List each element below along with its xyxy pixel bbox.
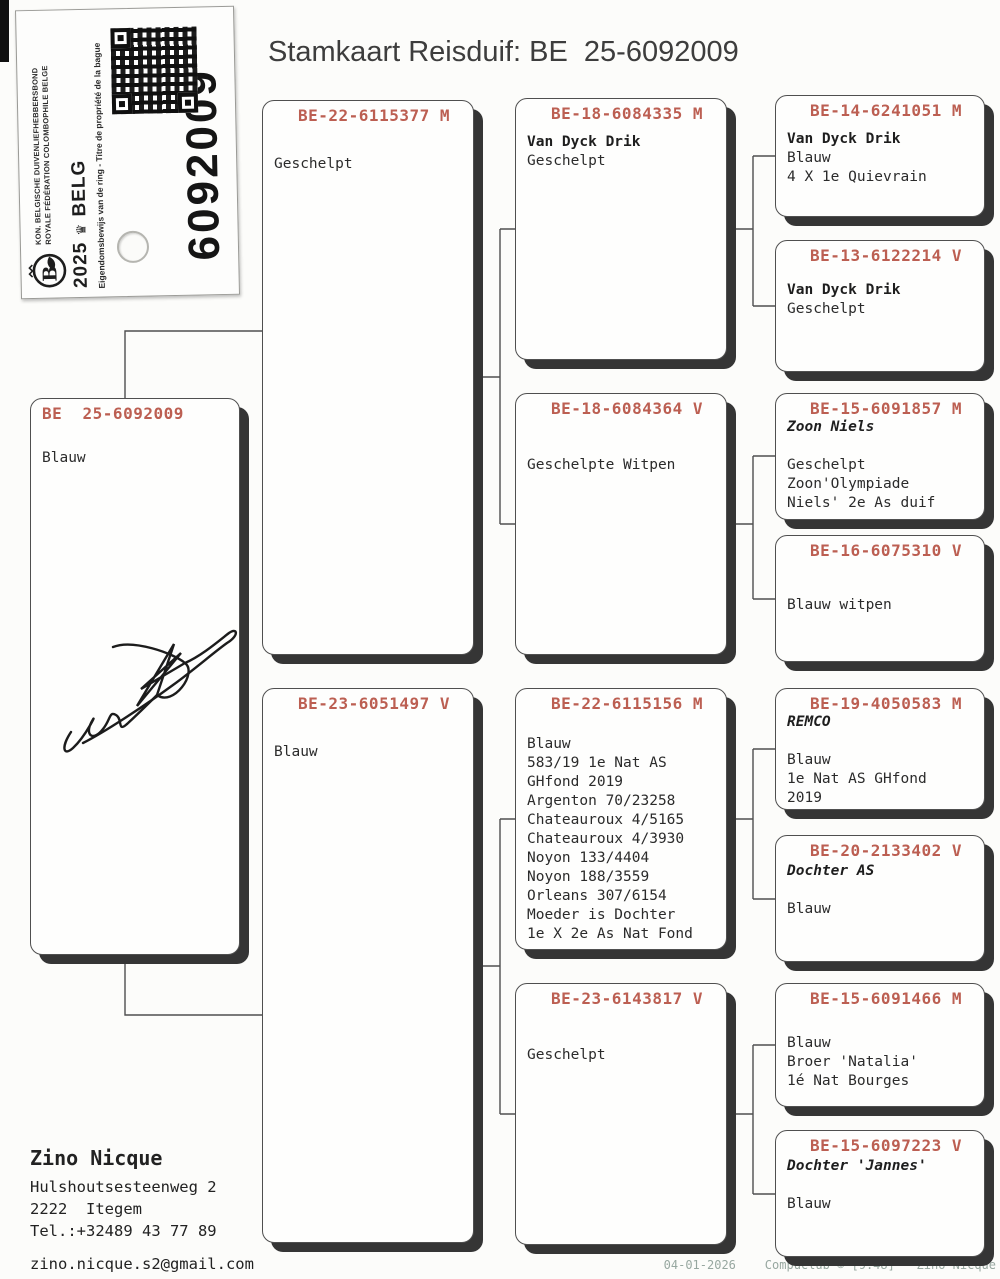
pedigree-box-sire: BE-22-6115377 M Geschelpt (262, 100, 474, 655)
pedigree-box-g3-2: BE-18-6084364 V Geschelpte Witpen (515, 393, 727, 655)
pigeon-description: Blauw 4 X 1e Quievrain (787, 149, 973, 187)
pigeon-description: Geschelpt (527, 1046, 715, 1065)
pedigree-box-g4-2: BE-13-6122214 V Van Dyck Drik Geschelpt (775, 240, 985, 372)
pedigree-box-g3-3: BE-22-6115156 M Blauw 583/19 1e Nat AS G… (515, 688, 727, 950)
pigeon-description: Blauw Broer 'Natalia' 1é Nat Bourges (787, 1034, 973, 1091)
pigeon-description: Geschelpt (527, 152, 715, 171)
pedigree-box-g4-6: BE-20-2133402 V Dochter AS Blauw (775, 835, 985, 962)
pedigree-box-subject: BE 25-6092009 Blauw (30, 398, 240, 955)
pigeon-name: Zoon Niels (787, 418, 973, 437)
pedigree-box-g4-5: BE-19-4050583 M REMCO Blauw 1e Nat AS GH… (775, 688, 985, 810)
ring-number: BE-13-6122214 V (787, 246, 973, 265)
ring-number: BE-23-6143817 V (527, 989, 715, 1008)
ring-number: BE-19-4050583 M (787, 694, 973, 713)
ring-number: BE 25-6092009 (42, 404, 228, 423)
crown-icon (29, 265, 32, 277)
pigeon-name: Van Dyck Drik (787, 130, 973, 149)
pigeon-description: Geschelpte Witpen (527, 456, 715, 475)
pigeon-description: Blauw 583/19 1e Nat AS GHfond 2019 Argen… (527, 735, 715, 944)
pigeon-description: Blauw 1e Nat AS GHfond 2019 (787, 732, 973, 808)
qr-code-icon (110, 27, 198, 115)
ring-number: BE-20-2133402 V (787, 841, 973, 860)
pigeon-description: Blauw (274, 743, 462, 762)
owner-signature (53, 611, 243, 761)
pigeon-description: Blauw (787, 881, 973, 919)
pedigree-box-g4-7: BE-15-6091466 M Blauw Broer 'Natalia' 1é… (775, 983, 985, 1107)
pigeon-name: Van Dyck Drik (787, 281, 973, 300)
ring-number: BE-15-6097223 V (787, 1136, 973, 1155)
pedigree-box-dam: BE-23-6051497 V Blauw (262, 688, 474, 1243)
pigeon-description: Geschelpt (787, 300, 973, 319)
ring-number: BE-18-6084364 V (527, 399, 715, 418)
pigeon-description: Blauw witpen (787, 596, 973, 615)
pigeon-name: Van Dyck Drik (527, 133, 715, 152)
ring-number: BE-15-6091857 M (787, 399, 973, 418)
ring-ownership-sticker: B KON. BELGISCHE DUIVENLIEFHEBBERSBOND R… (15, 6, 240, 300)
qr-finder-icon (110, 28, 130, 48)
pigeon-description: Blauw (42, 449, 228, 468)
ring-number: BE-22-6115156 M (527, 694, 715, 713)
pigeon-name: Dochter 'Jannes' (787, 1157, 973, 1176)
crest-icon: ♛ (73, 223, 88, 236)
pedigree-box-g4-4: BE-16-6075310 V Blauw witpen (775, 535, 985, 662)
ring-number: BE-15-6091466 M (787, 989, 973, 1008)
ring-country: BELG (68, 160, 90, 217)
qr-finder-icon (112, 94, 132, 114)
ring-number: BE-23-6051497 V (274, 694, 462, 713)
qr-finder-icon (178, 93, 198, 113)
pedigree-box-g3-1: BE-18-6084335 M Van Dyck Drik Geschelpt (515, 98, 727, 360)
ring-number: BE-22-6115377 M (274, 106, 462, 125)
ring-number: BE-16-6075310 V (787, 541, 973, 560)
pedigree-box-g4-8: BE-15-6097223 V Dochter 'Jannes' Blauw (775, 1130, 985, 1257)
ring-number: BE-18-6084335 M (527, 104, 715, 123)
pigeon-description: Blauw (787, 1176, 973, 1214)
pedigree-box-g4-1: BE-14-6241051 M Van Dyck Drik Blauw 4 X … (775, 95, 985, 217)
federation-logo-icon: B (28, 250, 69, 291)
pedigree-box-g3-4: BE-23-6143817 V Geschelpt (515, 983, 727, 1245)
pedigree-card-scan: B KON. BELGISCHE DUIVENLIEFHEBBERSBOND R… (0, 0, 1000, 1279)
pigeon-name: REMCO (787, 713, 973, 732)
pigeon-description: Geschelpt Zoon'Olympiade Niels' 2e As du… (787, 437, 973, 513)
pigeon-description: Geschelpt (274, 155, 462, 174)
pigeon-name: Dochter AS (787, 862, 973, 881)
ring-number: BE-14-6241051 M (787, 101, 973, 120)
ring-year: 2025 (70, 242, 92, 289)
pedigree-box-g4-3: BE-15-6091857 M Zoon Niels Geschelpt Zoo… (775, 393, 985, 520)
